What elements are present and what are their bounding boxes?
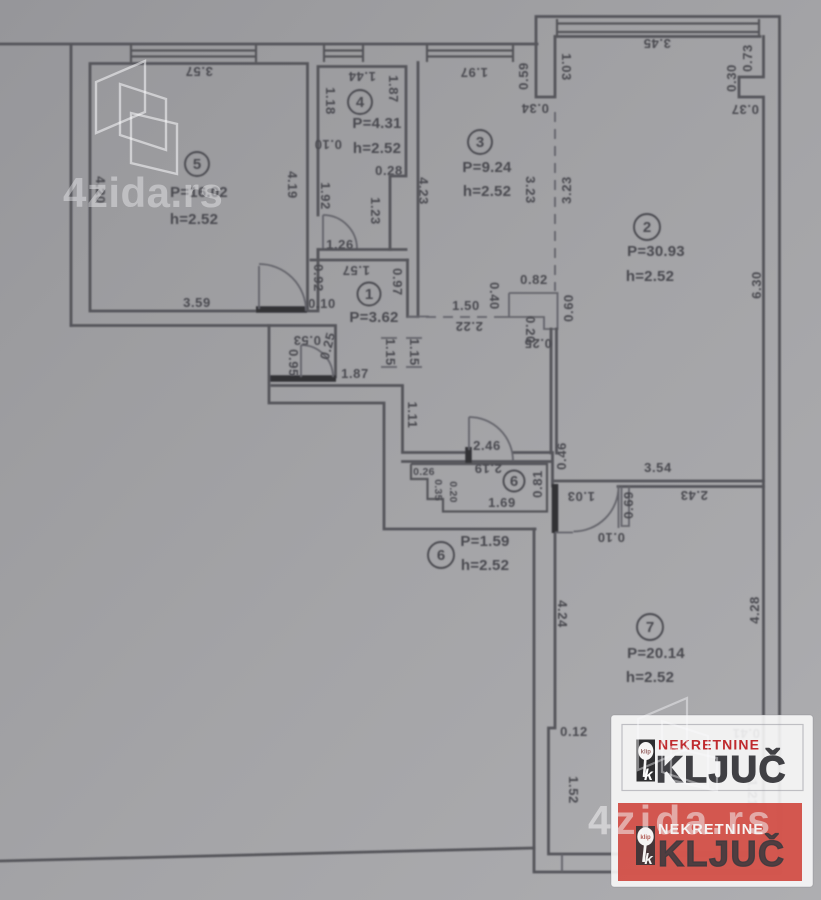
svg-text:1.57: 1.57 xyxy=(342,263,370,278)
svg-text:2.22: 2.22 xyxy=(455,319,483,334)
svg-text:1.44: 1.44 xyxy=(348,69,376,84)
svg-text:6: 6 xyxy=(437,547,445,564)
svg-text:3.57: 3.57 xyxy=(185,64,213,79)
svg-text:P=3.62: P=3.62 xyxy=(349,309,398,326)
svg-text:1.18: 1.18 xyxy=(323,87,338,115)
svg-text:1.92: 1.92 xyxy=(318,182,333,210)
svg-text:1.03: 1.03 xyxy=(567,489,595,504)
svg-text:2.46: 2.46 xyxy=(473,438,501,453)
svg-text:0.73: 0.73 xyxy=(740,44,755,72)
svg-text:1.15: 1.15 xyxy=(383,338,398,366)
svg-text:h=2.52: h=2.52 xyxy=(626,268,674,285)
svg-text:0.28: 0.28 xyxy=(375,163,403,178)
svg-text:k: k xyxy=(644,851,653,868)
svg-text:1.23: 1.23 xyxy=(368,197,383,225)
svg-text:1.87: 1.87 xyxy=(341,366,369,381)
svg-text:0.10: 0.10 xyxy=(597,530,625,545)
svg-text:0.97: 0.97 xyxy=(390,268,405,296)
svg-text:0.10: 0.10 xyxy=(308,296,336,311)
svg-text:h=2.52: h=2.52 xyxy=(353,140,401,157)
svg-text:7: 7 xyxy=(646,619,654,636)
svg-text:2.19: 2.19 xyxy=(474,461,502,476)
svg-text:1: 1 xyxy=(365,286,373,303)
svg-text:0.12: 0.12 xyxy=(560,724,588,739)
svg-text:0.37: 0.37 xyxy=(731,102,759,117)
svg-text:4.19: 4.19 xyxy=(285,171,300,199)
svg-text:0.46: 0.46 xyxy=(554,442,569,470)
svg-text:0.26: 0.26 xyxy=(413,466,435,478)
svg-text:P=4.31: P=4.31 xyxy=(352,115,401,132)
svg-text:2.43: 2.43 xyxy=(680,488,708,503)
svg-text:4.24: 4.24 xyxy=(555,600,570,628)
svg-text:1.15: 1.15 xyxy=(407,338,422,366)
svg-text:0.59: 0.59 xyxy=(516,62,531,90)
svg-text:P=30.93: P=30.93 xyxy=(627,243,685,260)
svg-text:1.52: 1.52 xyxy=(566,776,581,804)
svg-text:1.11: 1.11 xyxy=(405,402,420,429)
svg-text:0.34: 0.34 xyxy=(521,101,549,116)
svg-text:4zida.rs: 4zida.rs xyxy=(63,169,223,216)
svg-text:P=20.14: P=20.14 xyxy=(627,645,685,662)
svg-text:0.69: 0.69 xyxy=(621,491,636,519)
svg-text:3.45: 3.45 xyxy=(643,36,671,51)
svg-text:0.35: 0.35 xyxy=(432,479,444,501)
svg-text:0.40: 0.40 xyxy=(487,282,502,310)
svg-text:0.92: 0.92 xyxy=(311,264,326,292)
svg-text:4zida.rs: 4zida.rs xyxy=(588,797,774,843)
svg-text:0.25: 0.25 xyxy=(524,336,552,351)
svg-text:h=2.52: h=2.52 xyxy=(626,669,674,686)
svg-text:1.26: 1.26 xyxy=(326,237,354,252)
svg-text:1.97: 1.97 xyxy=(460,65,488,80)
svg-text:h=2.52: h=2.52 xyxy=(463,183,511,200)
svg-text:3.54: 3.54 xyxy=(644,460,672,475)
svg-text:0.95: 0.95 xyxy=(286,349,301,377)
svg-text:6.30: 6.30 xyxy=(749,271,764,299)
svg-text:1.69: 1.69 xyxy=(488,495,516,510)
svg-text:3.23: 3.23 xyxy=(559,176,574,204)
svg-text:h=2.52: h=2.52 xyxy=(461,557,509,574)
svg-text:0.10: 0.10 xyxy=(314,137,342,152)
svg-text:2: 2 xyxy=(643,219,651,236)
svg-text:0.82: 0.82 xyxy=(520,272,548,287)
svg-text:3.23: 3.23 xyxy=(523,176,538,204)
svg-text:3.59: 3.59 xyxy=(183,295,211,310)
svg-text:0.20: 0.20 xyxy=(447,481,459,503)
svg-text:P=1.59: P=1.59 xyxy=(460,533,509,550)
svg-text:6: 6 xyxy=(510,473,518,490)
svg-text:klip: klip xyxy=(641,750,652,756)
svg-text:3: 3 xyxy=(476,134,484,151)
svg-text:4.28: 4.28 xyxy=(747,596,762,624)
svg-text:1.50: 1.50 xyxy=(452,298,480,313)
svg-text:0.53: 0.53 xyxy=(293,333,321,348)
svg-text:1.87: 1.87 xyxy=(386,75,401,103)
svg-text:0.30: 0.30 xyxy=(724,64,739,92)
svg-text:k: k xyxy=(644,767,654,784)
svg-text:0.81: 0.81 xyxy=(530,470,545,498)
svg-text:1.03: 1.03 xyxy=(559,53,574,81)
svg-text:0.60: 0.60 xyxy=(561,294,576,322)
svg-text:P=9.24: P=9.24 xyxy=(462,159,512,176)
svg-text:4.23: 4.23 xyxy=(416,177,431,205)
svg-text:4: 4 xyxy=(356,94,365,111)
